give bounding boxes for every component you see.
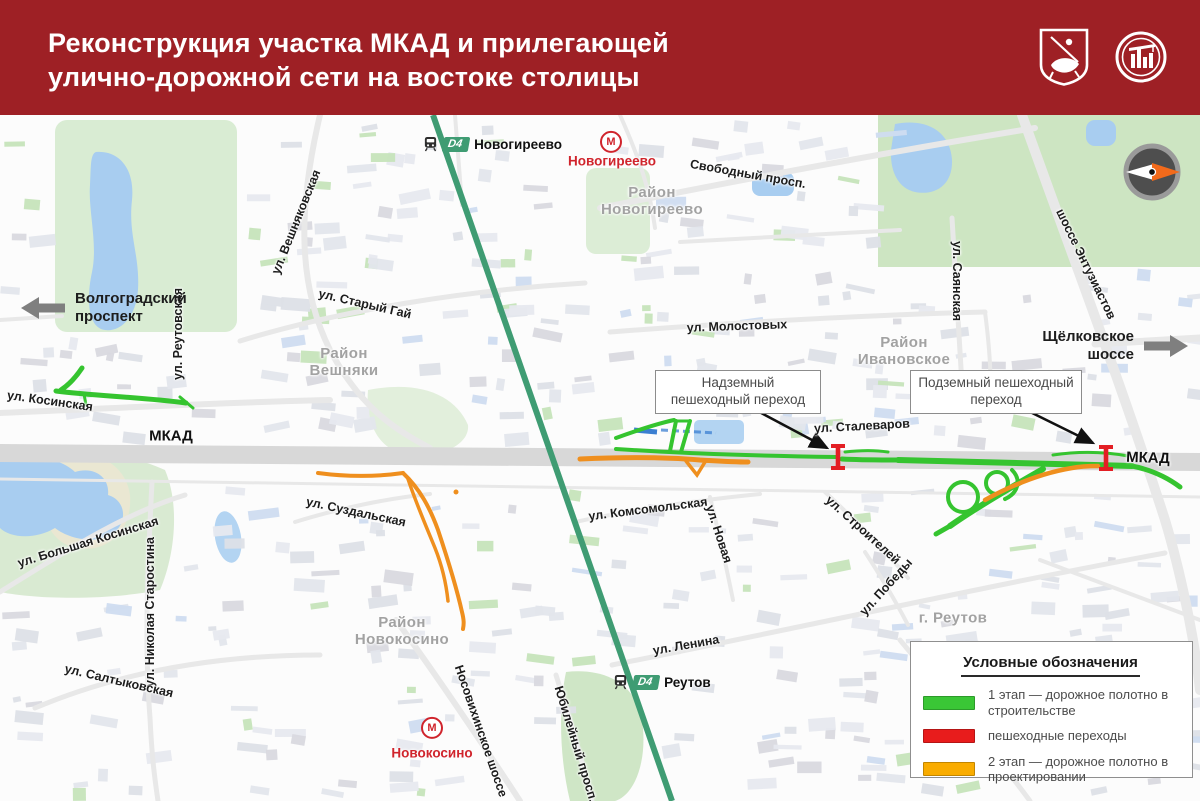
district-label: Район Новокосино <box>355 614 449 649</box>
district-label: Район Ивановское <box>858 334 950 369</box>
direction-shchelkovskoe: Щёлковское шоссе <box>1042 328 1189 364</box>
street-label: ул. Николая Старостина <box>143 537 157 687</box>
train-icon <box>613 674 628 690</box>
mkad-label: МКАД <box>149 428 193 445</box>
infographic-poster: ул. Вешняковскаяул. Старый ГайСвободный … <box>0 0 1200 801</box>
street-label: ул. Косинская <box>6 388 94 414</box>
header: Реконструкция участка МКАД и прилегающей… <box>0 0 1200 115</box>
direction-label: Щёлковское шоссе <box>1042 328 1134 364</box>
train-icon <box>423 136 438 152</box>
street-label: ул. Ленина <box>652 632 721 657</box>
street-label: ул. Старый Гай <box>317 287 413 322</box>
arrow-left-icon <box>20 296 66 320</box>
district-label: г. Реутов <box>919 609 988 626</box>
d4-station: D4Новогиреево <box>423 136 562 152</box>
construction-stage2-orange <box>318 458 1098 629</box>
street-label: ул. Салтыковская <box>63 662 174 701</box>
d4-station: D4Реутов <box>613 674 711 690</box>
compass-icon <box>1126 146 1180 198</box>
street-label: Носовихинское шоссе <box>452 663 510 799</box>
mkad-label: МКАД <box>1126 449 1170 468</box>
mkad-road <box>0 444 1200 471</box>
district-label: Район Новогиреево <box>601 184 703 219</box>
station-name: Реутов <box>664 675 711 690</box>
district-label: Район Вешняки <box>309 345 378 380</box>
metro-station-label: Новокосино <box>391 746 472 761</box>
title-line-2: улично-дорожной сети на востоке столицы <box>48 62 640 92</box>
legend-swatch <box>923 696 975 710</box>
street-label: ул. Молостовых <box>687 317 788 334</box>
street-label: ул. Суздальская <box>305 495 407 530</box>
d4-line-badge: D4 <box>442 137 471 152</box>
existing-overpass-blue <box>634 430 716 433</box>
legend-item: 2 этап — дорожное полотно в проектирован… <box>923 754 1178 785</box>
legend-item-label: 2 этап — дорожное полотно в проектирован… <box>988 754 1178 785</box>
metro-station-label: Новогиреево <box>568 154 656 169</box>
metro-icon: М <box>421 717 443 739</box>
street-label: шоссе Энтузиастов <box>1053 207 1119 322</box>
street-label: ул. Вешняковская <box>269 168 324 277</box>
legend-item-label: 1 этап — дорожное полотно в строительств… <box>988 687 1178 718</box>
station-name: Новогиреево <box>474 137 562 152</box>
arrow-right-icon <box>1143 334 1189 358</box>
callout-overground-crossing: Надземный пешеходный переход <box>655 370 821 414</box>
pedestrian-crossing-marker <box>831 444 1113 471</box>
street-label: Свободный просп. <box>689 157 807 191</box>
legend-item-label: пешеходные переходы <box>988 728 1178 744</box>
street-label: Юбилейный просп. <box>552 684 601 801</box>
direction-label: Волгоградский проспект <box>75 290 193 326</box>
direction-volgogradsky: Волгоградский проспект <box>20 290 193 326</box>
street-label: ул. Комсомольская <box>588 495 709 523</box>
street-label: ул. Строителей <box>823 493 903 567</box>
callout-underground-crossing: Подземный пешеходный переход <box>910 370 1082 414</box>
building-complex-logo-icon <box>1114 30 1168 84</box>
legend-item: пешеходные переходы <box>923 728 1178 744</box>
metro-icon: М <box>600 131 622 153</box>
legend-swatch <box>923 729 975 743</box>
street-label: ул. Новая <box>703 503 735 564</box>
d4-line-badge: D4 <box>632 675 661 690</box>
legend-item: 1 этап — дорожное полотно в строительств… <box>923 687 1178 718</box>
street-label: ул. Саянская <box>950 241 964 321</box>
moscow-coat-of-arms-icon <box>1038 27 1090 87</box>
legend-title: Условные обозначения <box>961 654 1140 677</box>
page-title: Реконструкция участка МКАД и прилегающей… <box>48 26 669 95</box>
legend-swatch <box>923 762 975 776</box>
street-label: ул. Победы <box>857 556 915 619</box>
street-label: ул. Большая Косинская <box>16 514 160 570</box>
street-label: ул. Сталеваров <box>814 416 911 435</box>
legend: Условные обозначения 1 этап — дорожное п… <box>910 641 1193 778</box>
title-line-1: Реконструкция участка МКАД и прилегающей <box>48 28 669 58</box>
logos <box>1038 27 1168 87</box>
legend-rows: 1 этап — дорожное полотно в строительств… <box>923 687 1178 785</box>
